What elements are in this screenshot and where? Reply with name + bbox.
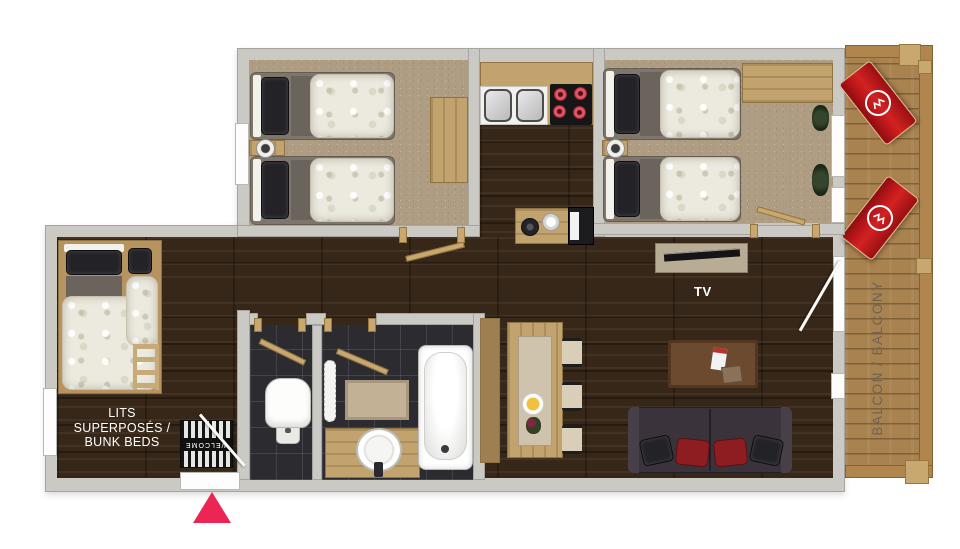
bunk-pillow-upper	[128, 248, 152, 274]
bed-duvet	[310, 74, 394, 138]
plant-icon	[812, 105, 829, 131]
toilet-button	[285, 428, 291, 433]
bed-sheet	[606, 71, 614, 137]
bed-sheet	[253, 75, 261, 137]
kitchen-sink	[484, 89, 512, 122]
balcony-label: BALCON / BALCONY	[870, 248, 890, 468]
kettle-icon	[521, 218, 539, 236]
lamp-icon	[606, 139, 625, 158]
burner-icon	[573, 106, 586, 119]
entrance-opening	[180, 472, 240, 490]
bunk-beds-label-line2: SUPERPOSÉS /	[52, 421, 192, 436]
tv-label: TV	[694, 284, 712, 299]
bed-duvet	[310, 158, 394, 222]
chair-logo-icon	[860, 85, 896, 121]
magazine	[721, 365, 743, 384]
radiator	[324, 360, 336, 422]
sofa-split	[709, 409, 711, 471]
bunk-blanket	[66, 276, 122, 297]
plant-icon	[812, 164, 829, 196]
balcony-post-mid	[916, 258, 932, 274]
sofa-armrest	[781, 407, 792, 473]
tub-drain-icon	[441, 445, 449, 453]
doorpost	[750, 224, 758, 238]
kitchen-sink	[516, 89, 544, 122]
doorpost	[457, 227, 465, 243]
wall-bath-top-3	[376, 313, 485, 325]
lamp-icon	[256, 139, 275, 158]
bed-duvet	[660, 70, 740, 138]
bed-sheet	[253, 159, 261, 221]
wall-wc-bath	[312, 325, 322, 480]
dining-chair	[562, 338, 582, 367]
sofa-pillow-red	[713, 437, 749, 467]
balcony-post-bottom	[905, 460, 929, 484]
wall-bath-top-2	[306, 313, 326, 325]
doorpost	[399, 227, 407, 243]
wall-bedroom2-bottom-right	[818, 223, 845, 235]
wall-bunk-wc	[237, 310, 250, 480]
bed-blanket	[640, 72, 662, 136]
bed-pillow	[261, 161, 289, 219]
doorpost	[812, 224, 820, 238]
balcony-post-top-nub	[918, 60, 932, 74]
burner-icon	[554, 88, 567, 101]
bed-pillow	[261, 77, 289, 135]
plate-icon	[522, 393, 544, 415]
sofa-armrest	[628, 407, 639, 473]
bunk-pillow	[66, 250, 122, 275]
entrance-arrow-icon	[193, 492, 231, 523]
doorpost	[324, 318, 332, 332]
doorpost	[254, 318, 262, 332]
bunk-beds-label: LITS SUPERPOSÉS / BUNK BEDS	[52, 406, 192, 450]
bunk-ladder	[133, 344, 159, 390]
bedroom2-window-1	[831, 115, 845, 177]
bunk-beds-label-line3: BUNK BEDS	[52, 435, 192, 450]
floor-plan: BALCON / BALCONY	[0, 0, 960, 549]
bedroom2-wardrobe	[742, 63, 833, 103]
bedroom1-wardrobe	[430, 97, 468, 183]
doorpost	[298, 318, 306, 332]
bathtub-basin	[424, 352, 467, 460]
bunk-beds-label-line1: LITS	[52, 406, 192, 421]
sink-faucet-icon	[374, 462, 383, 477]
bed-pillow	[614, 161, 640, 217]
wall-bedroom1-bottom-left	[237, 225, 405, 237]
bath-mat	[345, 380, 409, 420]
bedroom2-window-2	[831, 187, 845, 223]
wall-bedroom1-kitchen	[468, 48, 480, 237]
toilet	[265, 378, 311, 428]
flowers-icon	[526, 417, 541, 434]
burner-icon	[574, 87, 587, 100]
bed-pillow	[614, 74, 640, 134]
bedroom1-window	[235, 123, 249, 185]
wall-bedroom2-bottom-left	[593, 223, 755, 235]
living-window	[831, 373, 845, 399]
coffee-machine-panel	[570, 212, 579, 240]
bed-blanket	[640, 159, 662, 219]
dining-chair	[562, 425, 582, 454]
bed-sheet	[606, 159, 614, 219]
bed-duvet	[660, 157, 740, 221]
burner-icon	[553, 105, 566, 118]
sofa-pillow-red	[675, 437, 711, 467]
paper-roll-icon	[543, 214, 559, 230]
chair-logo-icon	[862, 200, 898, 236]
dining-chair	[562, 382, 582, 411]
dining-bench	[480, 318, 500, 463]
doorpost	[368, 318, 376, 332]
bunk-duvet-upper	[126, 276, 158, 346]
